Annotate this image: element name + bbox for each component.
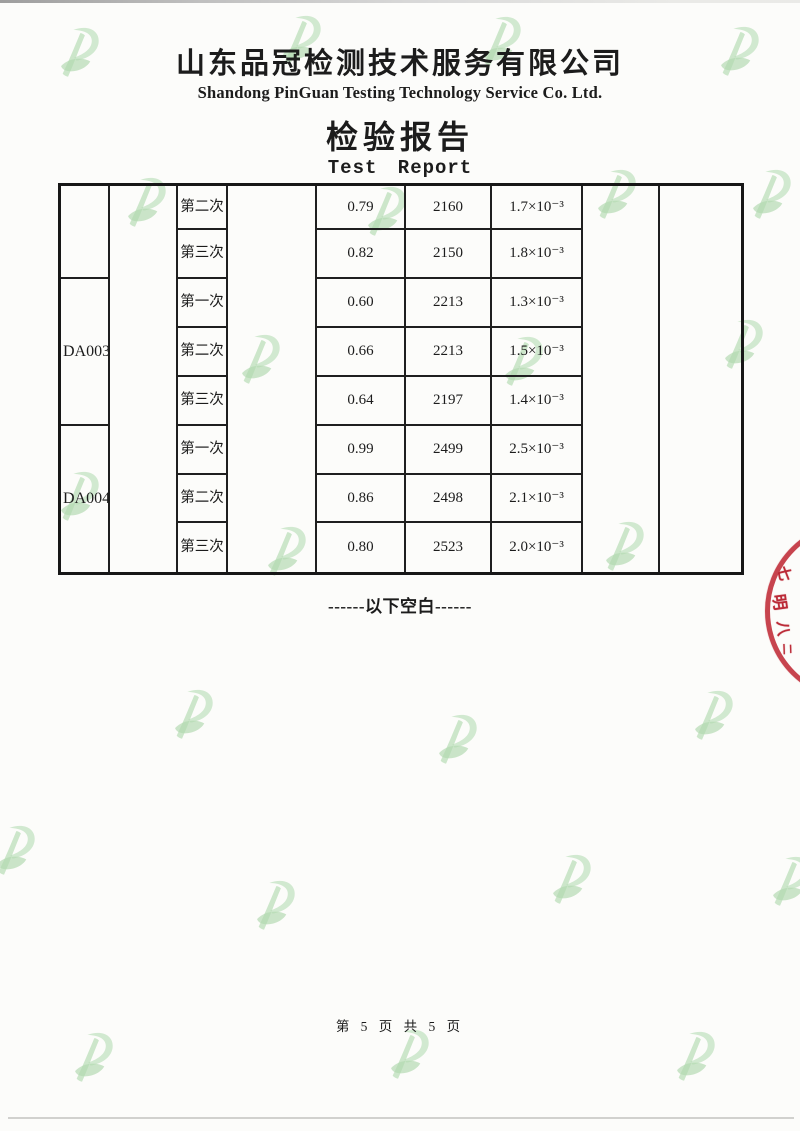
report-title-en: Test Report [0,157,800,179]
report-content: 山东品冠检测技术服务有限公司 Shandong PinGuan Testing … [0,0,800,1131]
trial-cell: 第三次 [178,230,228,279]
trial-cell: 第二次 [178,186,228,230]
value-cell: 1.7×10⁻³ [492,186,583,230]
page-number: 第 5 页 共 5 页 [0,1015,800,1035]
sample-id-cell [61,186,110,279]
value-cell: 0.99 [317,426,406,475]
blank-below-note: ------以下空白------ [0,592,800,617]
trial-cell: 第三次 [178,523,228,572]
trial-cell: 第二次 [178,328,228,377]
scan-edge-bottom [8,1117,794,1119]
value-cell: 2.5×10⁻³ [492,426,583,475]
value-cell: 1.3×10⁻³ [492,279,583,328]
value-cell: 1.8×10⁻³ [492,230,583,279]
report-title-cn: 检验报告 [0,112,800,158]
company-name-cn: 山东品冠检测技术服务有限公司 [0,40,800,82]
value-cell: 2.1×10⁻³ [492,475,583,523]
value-cell: 0.82 [317,230,406,279]
trial-cell: 第一次 [178,426,228,475]
results-table: DA003 DA004 第二次 第三次 第一次 第二次 第三次 第一次 第二次 … [58,183,744,575]
empty-cell [660,186,741,572]
value-cell: 1.4×10⁻³ [492,377,583,426]
value-cell: 2213 [406,328,492,377]
value-cell: 2498 [406,475,492,523]
sample-id-cell: DA004 [61,426,110,572]
value-cell: 1.5×10⁻³ [492,328,583,377]
scan-edge-top [0,0,800,3]
company-name-en: Shandong PinGuan Testing Technology Serv… [0,83,800,103]
trial-cell: 第一次 [178,279,228,328]
empty-cell [228,186,317,572]
sample-id-cell: DA003 [61,279,110,426]
empty-cell [583,186,660,572]
value-cell: 2.0×10⁻³ [492,523,583,572]
value-cell: 0.80 [317,523,406,572]
value-cell: 0.64 [317,377,406,426]
value-cell: 2523 [406,523,492,572]
value-cell: 0.66 [317,328,406,377]
value-cell: 2160 [406,186,492,230]
value-cell: 2499 [406,426,492,475]
value-cell: 0.86 [317,475,406,523]
value-cell: 0.60 [317,279,406,328]
report-page: 山东品冠检测技术服务有限公司 Shandong PinGuan Testing … [0,0,800,1131]
empty-cell [110,186,178,572]
value-cell: 0.79 [317,186,406,230]
trial-cell: 第三次 [178,377,228,426]
value-cell: 2213 [406,279,492,328]
value-cell: 2197 [406,377,492,426]
trial-cell: 第二次 [178,475,228,523]
value-cell: 2150 [406,230,492,279]
